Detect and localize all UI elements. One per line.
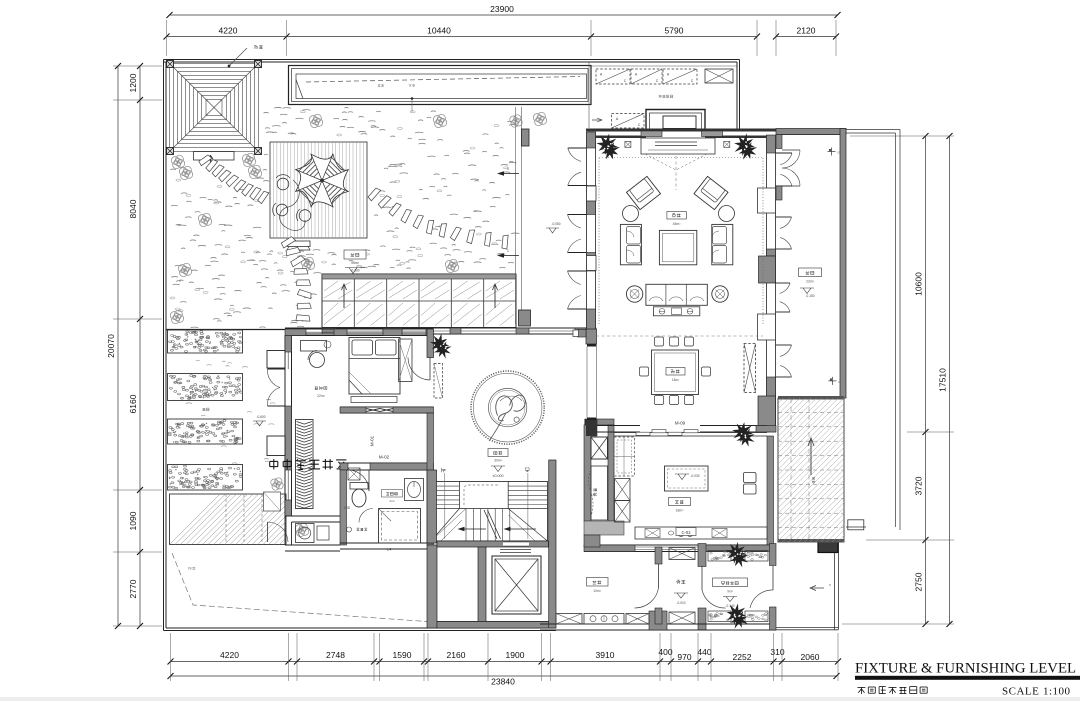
svg-text:440: 440 [697, 647, 711, 657]
svg-text:1: 1 [507, 249, 509, 253]
svg-text:10440: 10440 [427, 26, 451, 36]
svg-text:-0.140: -0.140 [725, 604, 734, 608]
svg-text:3910: 3910 [596, 650, 615, 660]
svg-text:-0.600: -0.600 [256, 415, 265, 419]
svg-text:10m²: 10m² [593, 589, 602, 593]
svg-text:±0.000: ±0.000 [493, 474, 504, 478]
svg-text:SCALE: SCALE [1002, 686, 1039, 698]
svg-text:8040: 8040 [128, 199, 138, 218]
svg-text:18m²: 18m² [676, 509, 685, 513]
svg-text:6160: 6160 [128, 394, 138, 413]
svg-text:1:100: 1:100 [1043, 686, 1071, 698]
svg-text:20070: 20070 [106, 334, 116, 358]
svg-text:400: 400 [658, 647, 672, 657]
svg-text:1900: 1900 [506, 650, 525, 660]
svg-text:1200: 1200 [128, 73, 138, 92]
svg-text:2748: 2748 [326, 650, 345, 660]
svg-text:4220: 4220 [220, 650, 239, 660]
svg-text:2120: 2120 [797, 26, 816, 36]
svg-text:-0.050: -0.050 [551, 222, 560, 226]
svg-text:95m²: 95m² [351, 261, 360, 265]
svg-text:310: 310 [770, 647, 784, 657]
svg-text:M-02: M-02 [379, 455, 390, 460]
svg-text:1: 1 [507, 167, 509, 171]
svg-text:L4: L4 [387, 547, 392, 552]
svg-text:45m²: 45m² [673, 222, 682, 226]
svg-text:C-02: C-02 [681, 530, 691, 535]
svg-text:2160: 2160 [447, 650, 466, 660]
svg-text:-0.030: -0.030 [690, 474, 699, 478]
svg-text:2770: 2770 [128, 579, 138, 598]
svg-text:3720: 3720 [914, 476, 924, 495]
svg-text:FIXTURE & FURNISHING LEVEL: FIXTURE & FURNISHING LEVEL [855, 661, 1076, 677]
svg-text:-0.150: -0.150 [805, 294, 814, 298]
svg-text:M-01: M-01 [370, 435, 375, 446]
svg-text:±: ± [829, 583, 831, 587]
svg-text:5790: 5790 [665, 26, 684, 36]
svg-text:23900: 23900 [490, 4, 514, 14]
svg-text:4m²: 4m² [389, 499, 394, 503]
svg-text:30m²: 30m² [494, 459, 503, 463]
svg-text:9m²: 9m² [727, 590, 733, 594]
svg-text:2750: 2750 [914, 572, 924, 591]
svg-text:18m²: 18m² [672, 378, 679, 382]
svg-text:M-09: M-09 [675, 421, 686, 426]
svg-text:2060: 2060 [801, 652, 820, 662]
svg-text:17510: 17510 [938, 368, 948, 392]
svg-text:1590: 1590 [393, 650, 412, 660]
svg-text:-0.010: -0.010 [676, 601, 685, 605]
svg-text:23m²: 23m² [806, 280, 815, 284]
svg-text:4220: 4220 [219, 26, 238, 36]
svg-text:1090: 1090 [128, 511, 138, 530]
svg-text:10600: 10600 [914, 272, 924, 296]
svg-text:970: 970 [677, 652, 691, 662]
svg-text:22m²: 22m² [317, 394, 326, 398]
svg-text:-0.300: -0.300 [350, 269, 359, 273]
svg-text:2252: 2252 [733, 652, 752, 662]
svg-text:23840: 23840 [491, 677, 515, 687]
